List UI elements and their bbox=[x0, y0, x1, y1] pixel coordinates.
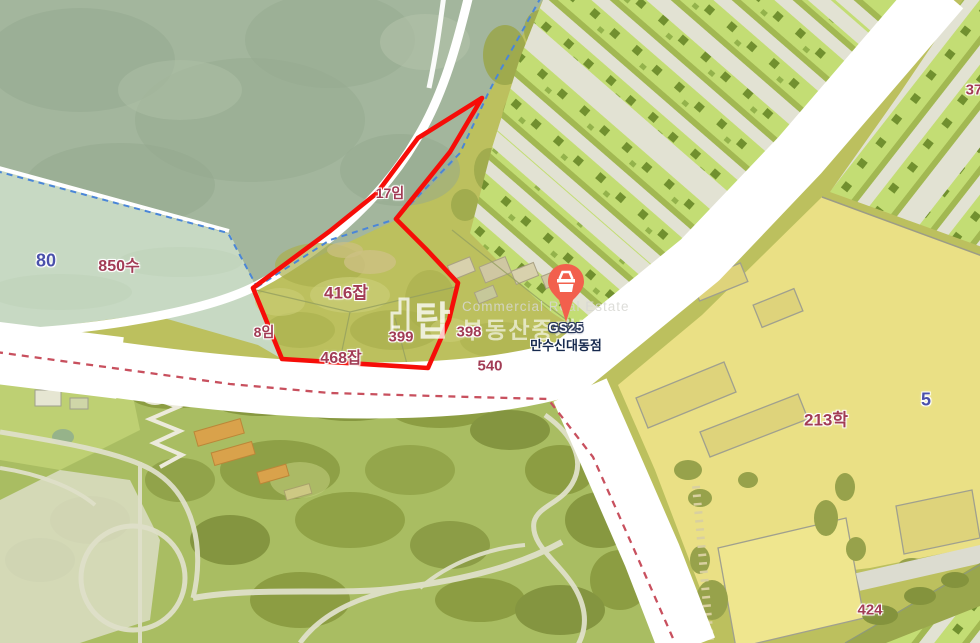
poi-name-label[interactable]: 만수신대동점 bbox=[496, 335, 636, 354]
poi-brand-label[interactable]: GS25 bbox=[496, 320, 636, 335]
store-pin-icon[interactable] bbox=[546, 262, 586, 324]
poi-marker-gs25[interactable]: GS25 만수신대동점 bbox=[496, 262, 636, 354]
map-base-layer bbox=[0, 0, 980, 643]
map-canvas[interactable]: 탑 Commercial Real Estate 부동산중개법인 80850수8… bbox=[0, 0, 980, 643]
